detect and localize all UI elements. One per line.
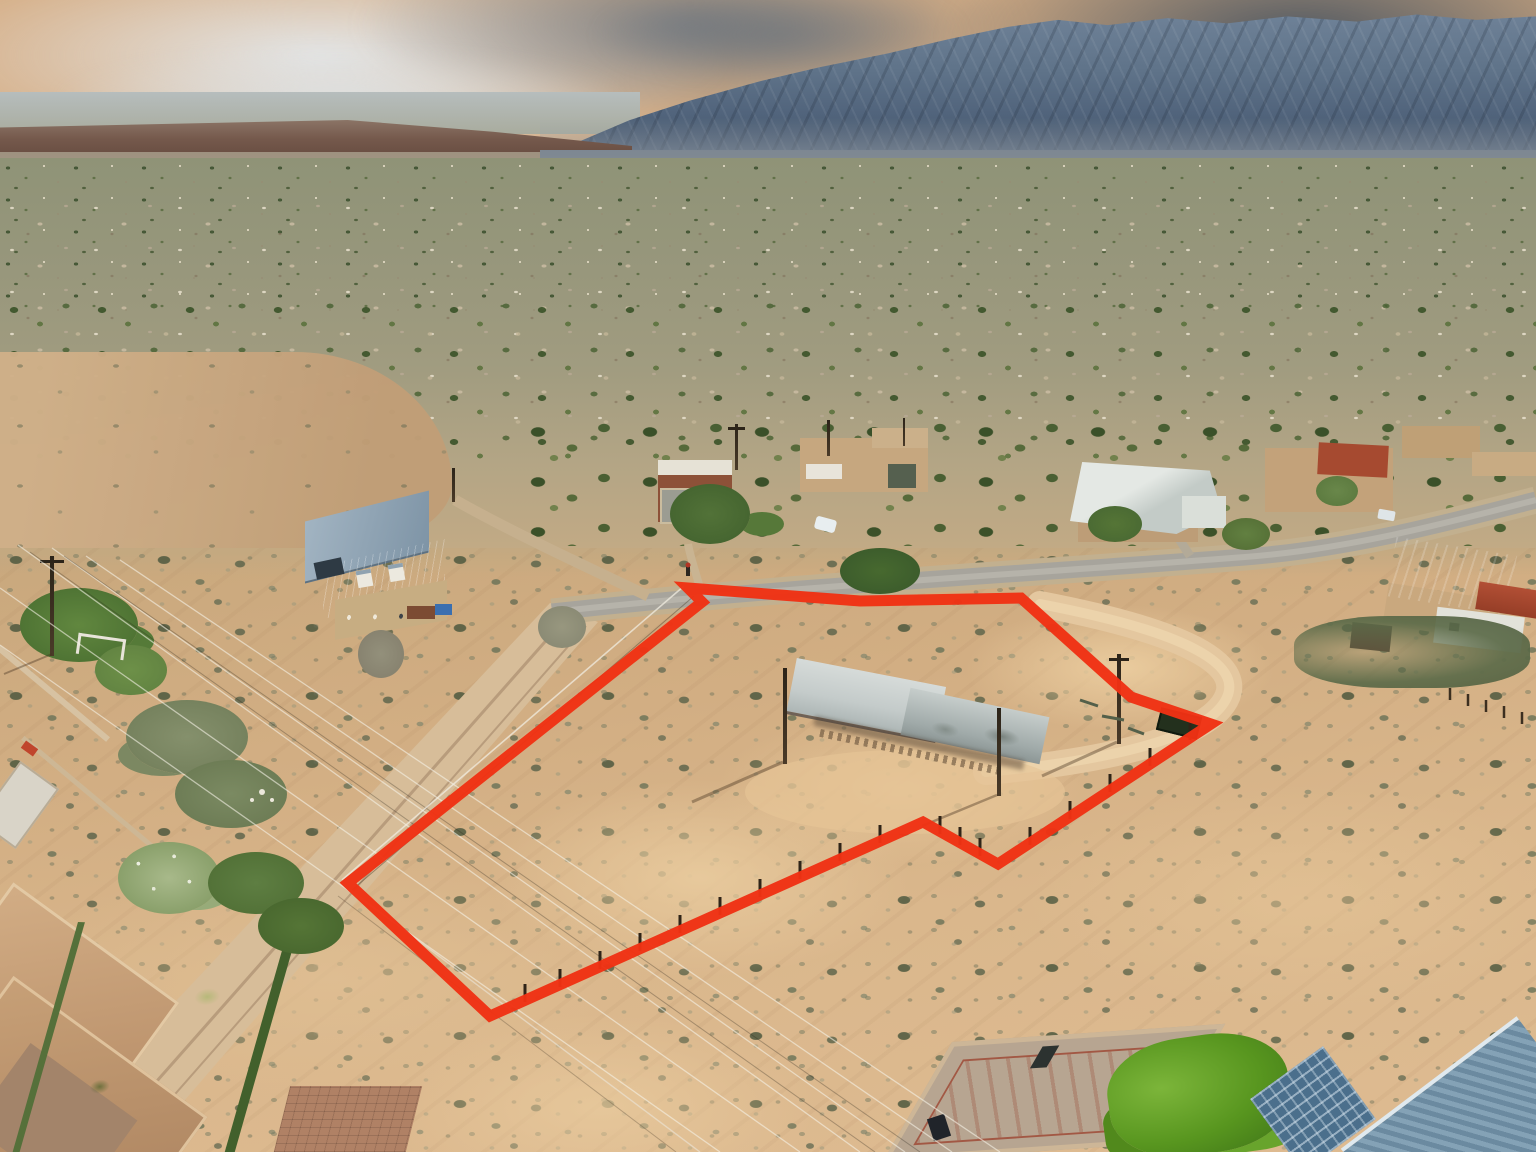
power-lines xyxy=(0,545,1000,1152)
patio-table-set xyxy=(250,789,274,802)
pole-shadows xyxy=(4,654,1117,826)
fence-posts-right xyxy=(1450,688,1522,724)
fence-lines xyxy=(338,586,700,1152)
property-boundary-outline xyxy=(348,588,1211,1016)
aerial-photo xyxy=(0,0,1536,1152)
power-lines-dark xyxy=(30,552,920,1152)
debris-marks xyxy=(1080,700,1144,734)
overlay-marks xyxy=(0,0,1536,1152)
mailbox xyxy=(686,563,691,577)
